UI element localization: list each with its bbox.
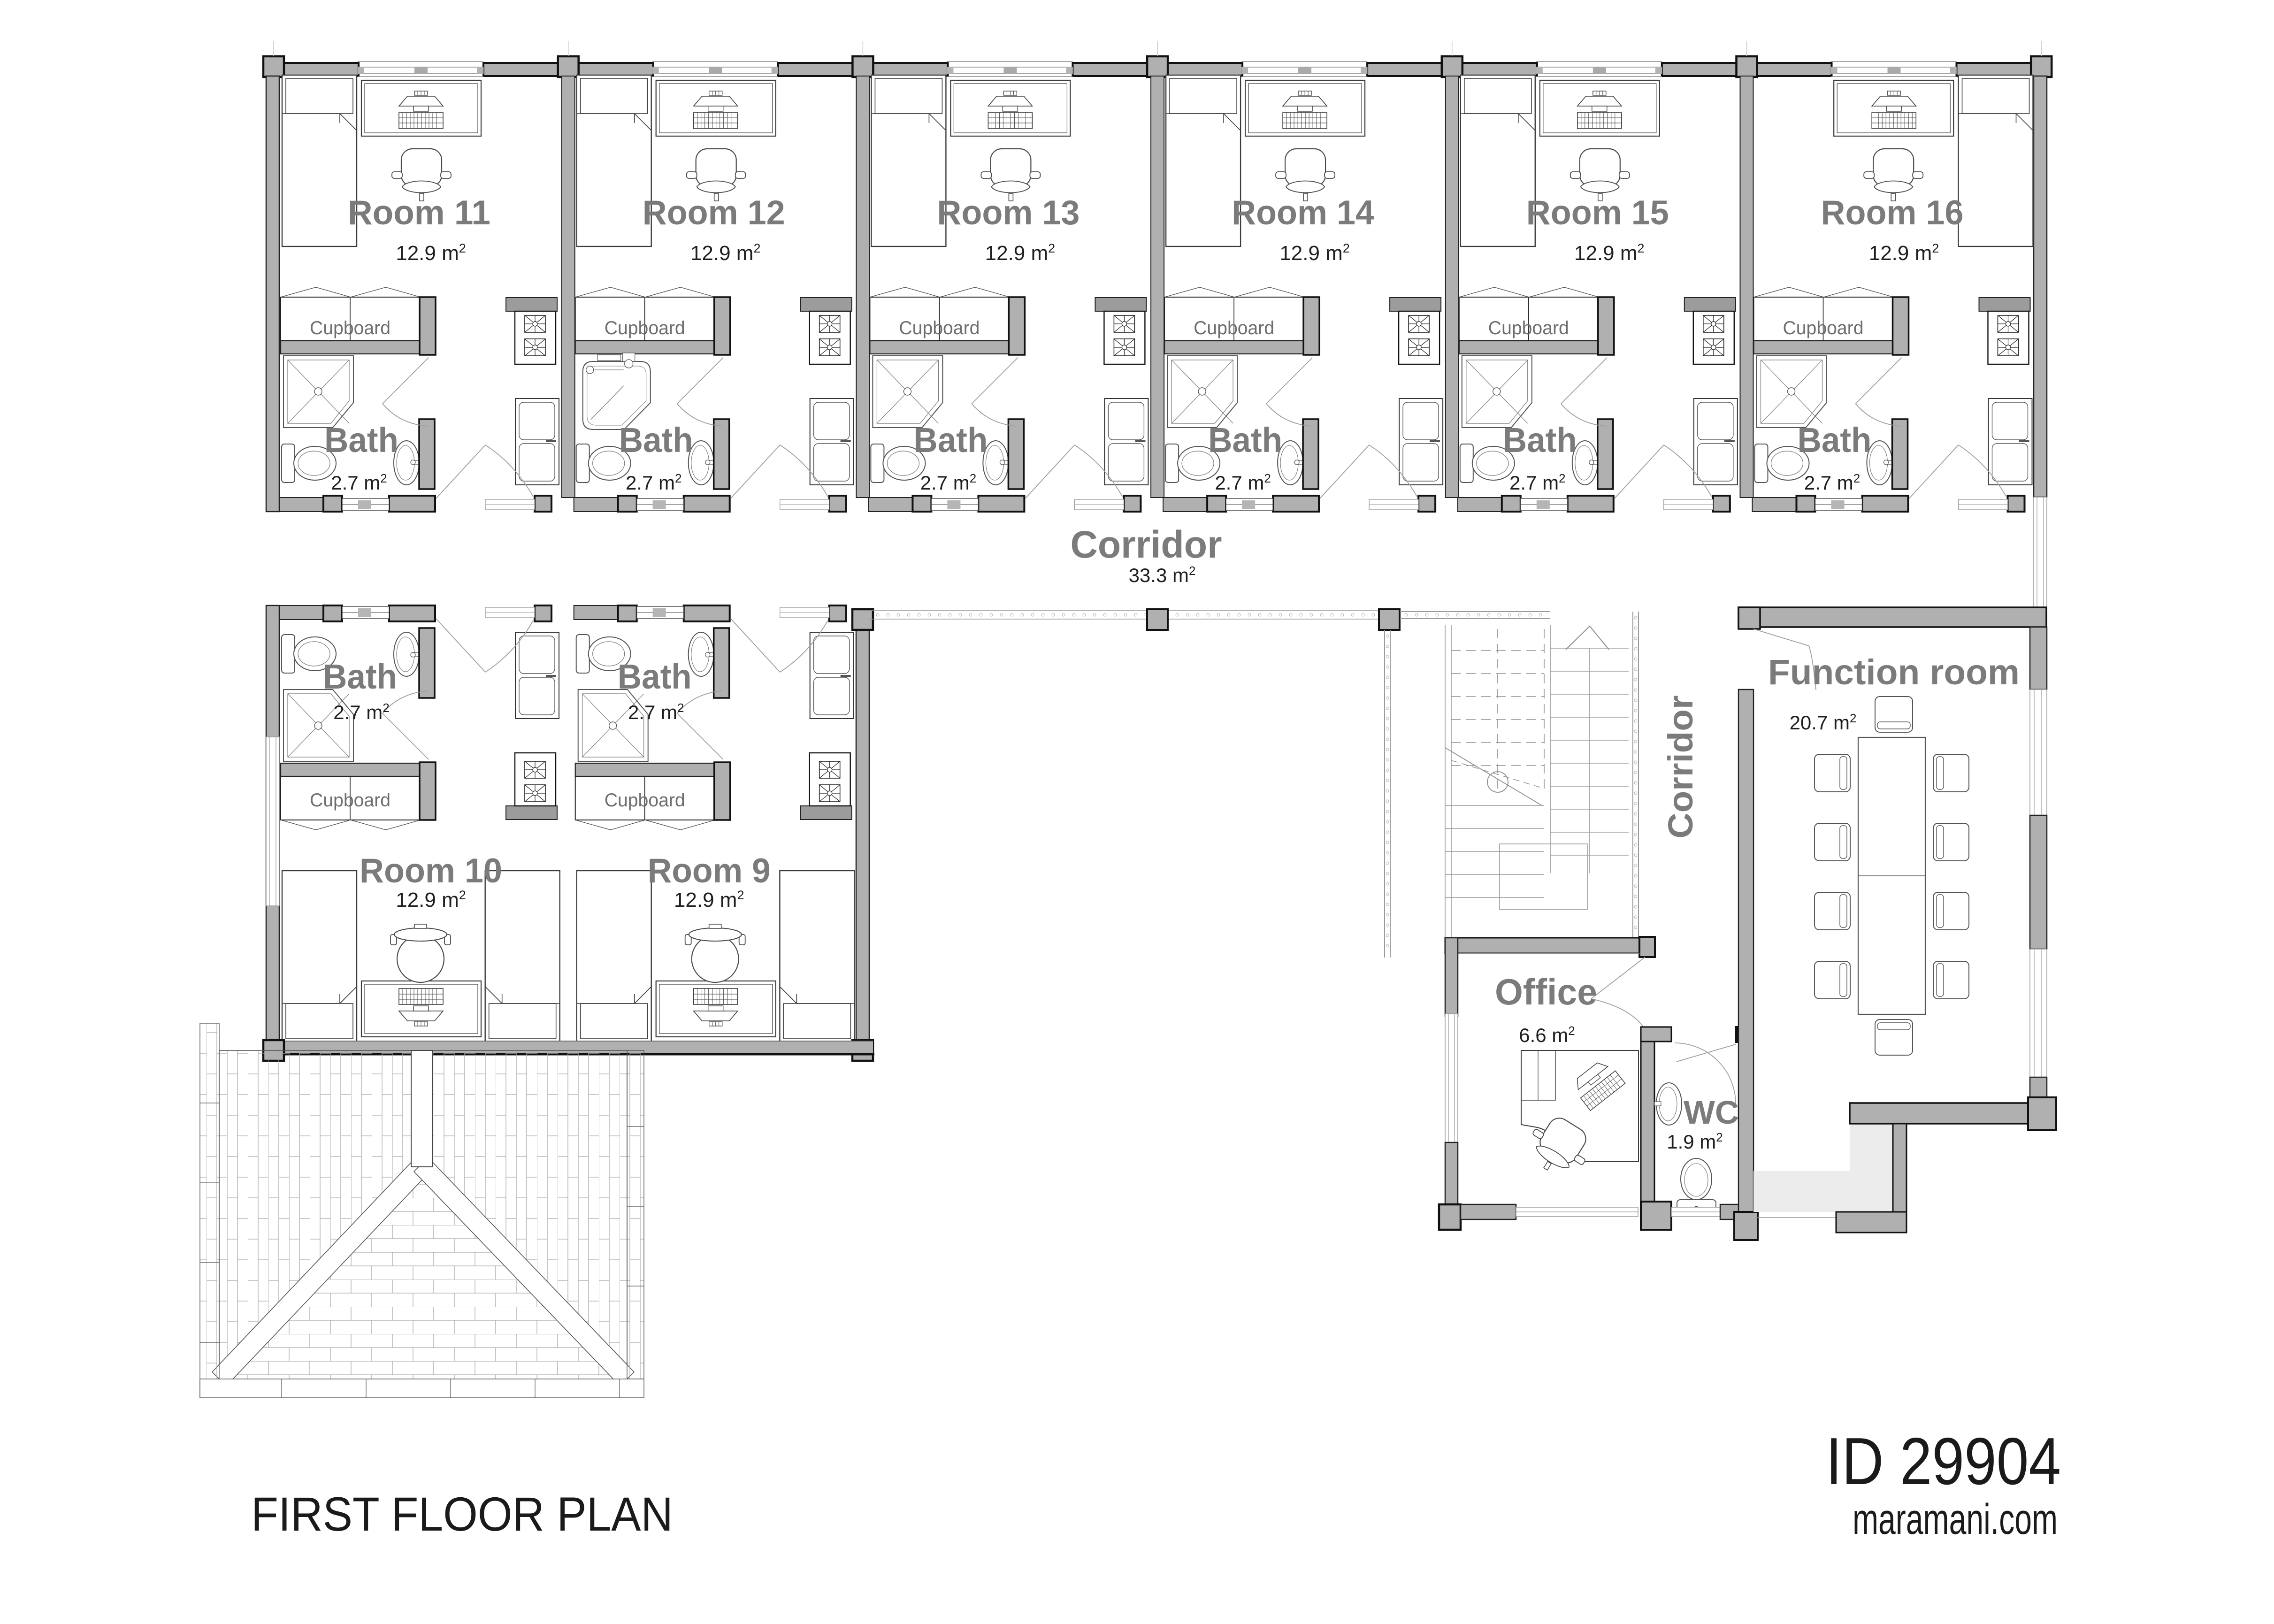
svg-text:Corridor: Corridor bbox=[1071, 523, 1222, 566]
svg-text:Function room: Function room bbox=[1768, 652, 2020, 692]
svg-text:Bath: Bath bbox=[324, 421, 398, 460]
svg-text:12.9 m2: 12.9 m2 bbox=[985, 241, 1056, 265]
svg-text:12.9 m2: 12.9 m2 bbox=[396, 888, 466, 912]
svg-text:WC: WC bbox=[1684, 1094, 1739, 1131]
svg-text:Room 16: Room 16 bbox=[1821, 194, 1964, 232]
svg-text:2.7 m2: 2.7 m2 bbox=[920, 471, 977, 494]
svg-text:12.9 m2: 12.9 m2 bbox=[396, 241, 466, 265]
svg-text:12.9 m2: 12.9 m2 bbox=[1574, 241, 1645, 265]
svg-text:33.3 m2: 33.3 m2 bbox=[1129, 564, 1196, 586]
svg-text:Bath: Bath bbox=[1503, 421, 1577, 460]
svg-text:Cupboard: Cupboard bbox=[1783, 318, 1864, 338]
svg-text:6.6 m2: 6.6 m2 bbox=[1519, 1024, 1575, 1046]
svg-text:Cupboard: Cupboard bbox=[605, 318, 685, 338]
svg-text:Cupboard: Cupboard bbox=[605, 790, 685, 811]
svg-text:Bath: Bath bbox=[618, 657, 692, 696]
svg-text:Bath: Bath bbox=[323, 657, 397, 696]
svg-text:Room 10: Room 10 bbox=[360, 852, 502, 890]
svg-text:Room 14: Room 14 bbox=[1232, 194, 1374, 232]
svg-text:Corridor: Corridor bbox=[1661, 696, 1700, 839]
svg-text:12.9 m2: 12.9 m2 bbox=[1279, 241, 1350, 265]
svg-text:20.7 m2: 20.7 m2 bbox=[1790, 711, 1857, 734]
svg-text:Bath: Bath bbox=[619, 421, 693, 460]
svg-text:Office: Office bbox=[1495, 971, 1597, 1012]
svg-text:Room 15: Room 15 bbox=[1526, 194, 1669, 232]
svg-text:Room 11: Room 11 bbox=[348, 194, 490, 232]
svg-text:Room 12: Room 12 bbox=[643, 194, 785, 232]
svg-text:ID 29904: ID 29904 bbox=[1826, 1424, 2061, 1499]
svg-text:Cupboard: Cupboard bbox=[899, 318, 980, 338]
svg-text:Room 9: Room 9 bbox=[648, 852, 771, 890]
svg-text:Room 13: Room 13 bbox=[937, 194, 1080, 232]
svg-text:12.9 m2: 12.9 m2 bbox=[1869, 241, 1939, 265]
svg-text:2.7 m2: 2.7 m2 bbox=[1804, 471, 1861, 494]
svg-text:Cupboard: Cupboard bbox=[1194, 318, 1274, 338]
svg-text:FIRST FLOOR PLAN: FIRST FLOOR PLAN bbox=[251, 1487, 673, 1541]
svg-text:Bath: Bath bbox=[913, 421, 988, 460]
svg-text:Cupboard: Cupboard bbox=[1488, 318, 1569, 338]
svg-text:Cupboard: Cupboard bbox=[310, 790, 390, 811]
svg-text:2.7 m2: 2.7 m2 bbox=[628, 701, 684, 723]
svg-text:Cupboard: Cupboard bbox=[310, 318, 390, 338]
svg-text:Bath: Bath bbox=[1208, 421, 1282, 460]
svg-text:1.9 m2: 1.9 m2 bbox=[1667, 1130, 1723, 1153]
svg-text:Bath: Bath bbox=[1798, 421, 1872, 460]
svg-text:2.7 m2: 2.7 m2 bbox=[333, 701, 390, 723]
svg-text:12.9 m2: 12.9 m2 bbox=[690, 241, 761, 265]
svg-text:2.7 m2: 2.7 m2 bbox=[331, 471, 387, 494]
svg-text:maramani.com: maramani.com bbox=[1853, 1495, 2058, 1543]
svg-text:12.9 m2: 12.9 m2 bbox=[674, 888, 744, 912]
svg-text:2.7 m2: 2.7 m2 bbox=[1509, 471, 1566, 494]
svg-text:2.7 m2: 2.7 m2 bbox=[1215, 471, 1271, 494]
svg-text:2.7 m2: 2.7 m2 bbox=[626, 471, 682, 494]
